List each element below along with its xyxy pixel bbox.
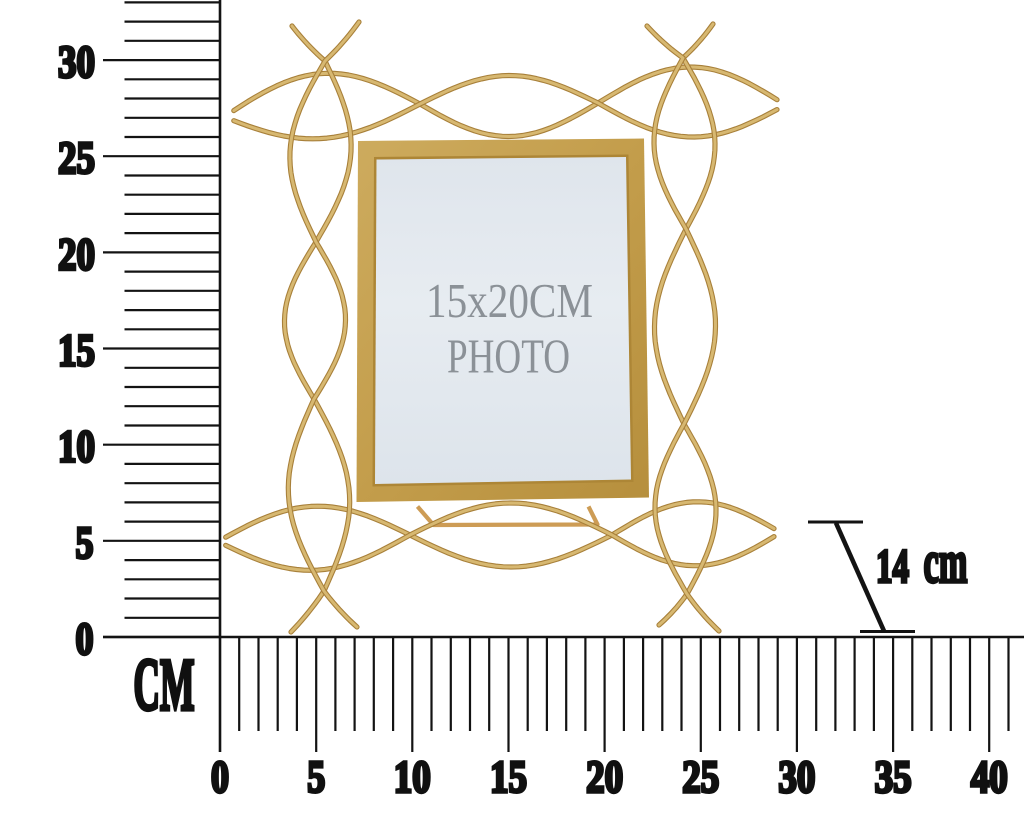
svg-text:CM: CM [134,645,195,727]
svg-text:0: 0 [76,613,94,664]
svg-text:40: 40 [971,751,1008,802]
svg-text:25: 25 [682,751,719,802]
svg-text:35: 35 [875,751,912,802]
svg-text:25: 25 [58,132,95,183]
svg-text:10: 10 [58,421,95,472]
svg-text:15x20CM: 15x20CM [426,273,593,328]
svg-text:14: 14 [876,540,909,593]
svg-text:15: 15 [58,325,95,376]
svg-text:0: 0 [211,751,229,802]
svg-text:20: 20 [586,751,623,802]
svg-text:10: 10 [394,751,431,802]
svg-text:5: 5 [76,517,94,568]
svg-text:30: 30 [778,751,815,802]
svg-text:15: 15 [490,751,527,802]
svg-text:5: 5 [307,751,325,802]
svg-text:30: 30 [58,36,95,87]
svg-text:20: 20 [58,228,95,279]
svg-text:PHOTO: PHOTO [447,329,570,384]
svg-text:cm: cm [924,529,968,595]
